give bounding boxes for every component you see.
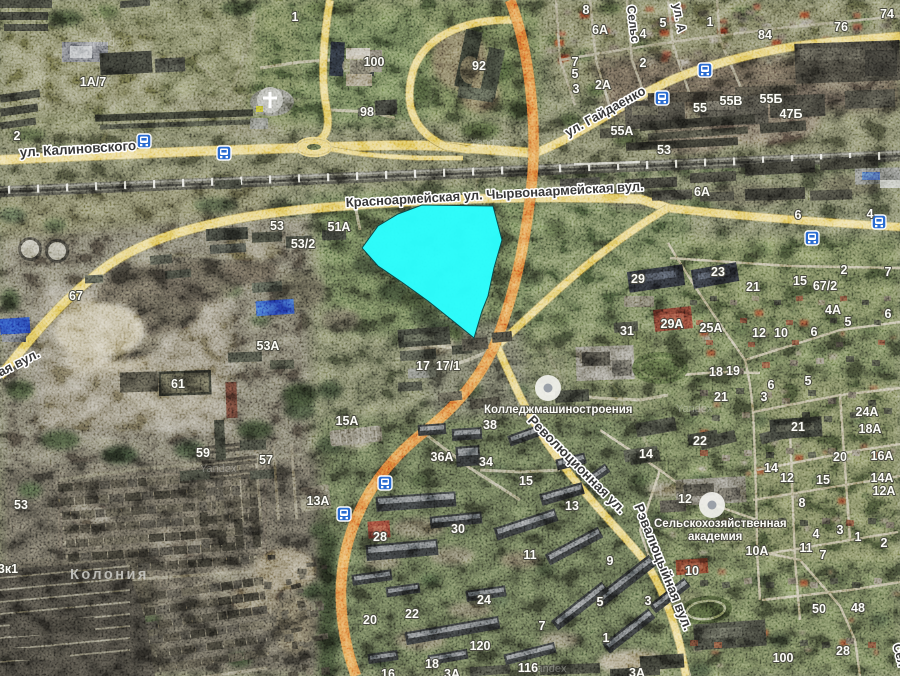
svg-text:Yandex: Yandex	[470, 137, 507, 149]
svg-text:8: 8	[583, 3, 590, 17]
svg-text:3: 3	[573, 82, 580, 96]
svg-text:12А: 12А	[873, 484, 896, 498]
svg-text:15: 15	[519, 474, 533, 488]
svg-text:57: 57	[259, 453, 273, 467]
svg-text:3А: 3А	[629, 666, 645, 676]
svg-text:7: 7	[539, 619, 546, 633]
svg-text:10А: 10А	[746, 544, 769, 558]
svg-text:15: 15	[793, 274, 807, 288]
svg-text:74: 74	[880, 7, 894, 21]
svg-text:Сельскохозяйственная: Сельскохозяйственная	[654, 518, 787, 530]
svg-text:2: 2	[841, 263, 848, 277]
svg-text:3к1: 3к1	[0, 562, 18, 576]
svg-text:2: 2	[14, 129, 21, 143]
svg-text:12: 12	[678, 492, 692, 506]
svg-text:10: 10	[774, 326, 788, 340]
svg-text:23: 23	[711, 265, 725, 279]
svg-text:4: 4	[867, 207, 874, 221]
svg-text:6: 6	[885, 307, 892, 321]
svg-text:1: 1	[292, 10, 299, 24]
svg-text:22: 22	[405, 607, 419, 621]
svg-text:53А: 53А	[257, 339, 280, 353]
svg-text:5: 5	[572, 67, 579, 81]
svg-text:20: 20	[363, 613, 377, 627]
svg-text:48: 48	[851, 601, 865, 615]
svg-text:5: 5	[597, 595, 604, 609]
svg-text:Yandex: Yandex	[90, 37, 127, 49]
svg-text:18: 18	[425, 657, 439, 671]
svg-text:14А: 14А	[871, 471, 894, 485]
svg-text:16: 16	[381, 667, 395, 676]
svg-text:3А: 3А	[444, 667, 460, 676]
svg-text:13: 13	[565, 499, 579, 513]
svg-text:92: 92	[472, 59, 486, 73]
svg-text:6А: 6А	[694, 185, 710, 199]
svg-text:53: 53	[14, 498, 28, 512]
svg-text:21: 21	[714, 390, 728, 404]
svg-text:53: 53	[657, 143, 671, 157]
svg-text:67: 67	[69, 289, 83, 303]
svg-text:10: 10	[685, 564, 699, 578]
svg-text:3: 3	[645, 594, 652, 608]
svg-text:7: 7	[820, 548, 827, 562]
svg-text:1: 1	[855, 530, 862, 544]
svg-text:4А: 4А	[825, 303, 841, 317]
svg-text:34: 34	[479, 455, 493, 469]
svg-text:55В: 55В	[720, 94, 743, 108]
svg-text:8: 8	[799, 496, 806, 510]
svg-text:24: 24	[477, 593, 491, 607]
svg-text:Yandex: Yandex	[200, 463, 237, 475]
svg-text:53/2: 53/2	[291, 237, 315, 251]
svg-text:20: 20	[833, 450, 847, 464]
svg-text:2А: 2А	[595, 78, 611, 92]
svg-text:67/2: 67/2	[813, 279, 837, 293]
svg-text:2: 2	[881, 536, 888, 550]
svg-text:28: 28	[373, 530, 387, 544]
svg-text:24А: 24А	[856, 405, 879, 419]
svg-text:15А: 15А	[336, 414, 359, 428]
svg-text:50: 50	[812, 602, 826, 616]
svg-text:1А/7: 1А/7	[80, 75, 106, 89]
svg-text:7: 7	[885, 265, 892, 279]
svg-text:14: 14	[764, 461, 778, 475]
svg-text:12: 12	[780, 471, 794, 485]
svg-text:25А: 25А	[700, 321, 723, 335]
svg-text:55: 55	[693, 101, 707, 115]
svg-text:14: 14	[639, 447, 653, 461]
svg-text:98: 98	[360, 105, 374, 119]
svg-text:84: 84	[758, 28, 772, 42]
svg-text:16А: 16А	[871, 449, 894, 463]
svg-text:47Б: 47Б	[780, 107, 803, 121]
svg-text:59: 59	[196, 446, 210, 460]
svg-text:5: 5	[845, 315, 852, 329]
svg-text:116: 116	[518, 661, 538, 675]
svg-text:4: 4	[640, 27, 647, 41]
svg-text:5: 5	[805, 374, 812, 388]
svg-text:76: 76	[834, 20, 848, 34]
svg-text:36А: 36А	[431, 450, 454, 464]
svg-text:11: 11	[799, 541, 812, 555]
svg-text:13А: 13А	[307, 494, 330, 508]
svg-text:6: 6	[795, 208, 802, 222]
svg-text:55А: 55А	[611, 124, 634, 138]
svg-text:51А: 51А	[328, 220, 351, 234]
svg-text:9: 9	[607, 554, 614, 568]
svg-text:28: 28	[836, 644, 850, 658]
svg-text:Колледжмашиностроения: Колледжмашиностроения	[484, 404, 633, 416]
svg-text:11: 11	[523, 548, 536, 562]
svg-text:12: 12	[752, 326, 766, 340]
svg-text:21: 21	[791, 420, 805, 434]
svg-text:38: 38	[483, 418, 497, 432]
svg-text:6: 6	[768, 378, 775, 392]
svg-text:4: 4	[813, 527, 820, 541]
svg-text:100: 100	[364, 55, 385, 69]
svg-text:5: 5	[660, 16, 667, 30]
svg-text:53: 53	[270, 219, 284, 233]
svg-text:19: 19	[726, 364, 740, 378]
svg-text:55Б: 55Б	[760, 92, 783, 106]
svg-text:Колония: Колония	[70, 567, 149, 583]
svg-text:21: 21	[746, 280, 760, 294]
svg-text:17: 17	[416, 359, 430, 373]
svg-text:29: 29	[631, 272, 645, 286]
svg-text:6А: 6А	[592, 23, 608, 37]
svg-text:3: 3	[761, 390, 768, 404]
svg-text:61: 61	[171, 377, 185, 391]
svg-text:6: 6	[811, 325, 818, 339]
svg-text:18А: 18А	[859, 422, 882, 436]
svg-text:15: 15	[816, 473, 830, 487]
svg-text:30: 30	[451, 522, 465, 536]
svg-text:17/1: 17/1	[436, 359, 460, 373]
svg-text:29А: 29А	[661, 317, 684, 331]
svg-text:22: 22	[693, 434, 707, 448]
svg-text:академия: академия	[688, 531, 742, 543]
svg-text:1: 1	[707, 15, 714, 29]
svg-text:100: 100	[773, 651, 794, 665]
svg-text:3: 3	[837, 523, 844, 537]
svg-text:Yandex: Yandex	[676, 403, 713, 415]
svg-text:31: 31	[620, 324, 634, 338]
svg-text:18: 18	[709, 365, 723, 379]
svg-text:2: 2	[640, 56, 647, 70]
svg-text:120: 120	[470, 639, 491, 653]
svg-text:1: 1	[603, 631, 610, 645]
